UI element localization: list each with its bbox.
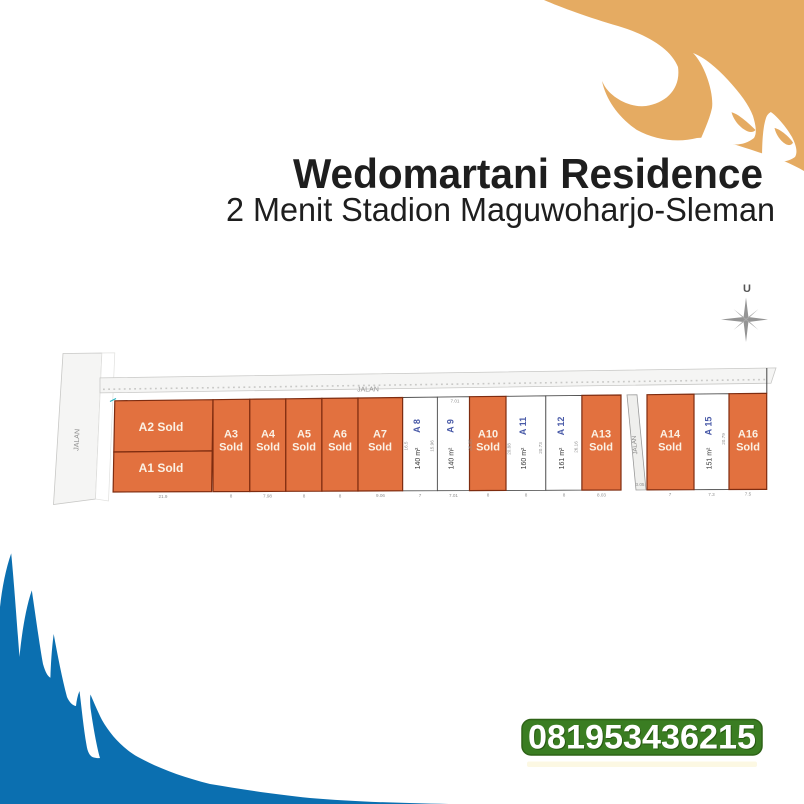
svg-text:8: 8 xyxy=(525,493,528,498)
svg-text:3.05: 3.05 xyxy=(636,482,645,487)
svg-text:Sold: Sold xyxy=(368,442,392,454)
svg-text:161 m²: 161 m² xyxy=(559,447,566,469)
svg-text:Wedomartani Residence: Wedomartani Residence xyxy=(293,150,763,197)
svg-text:JALAN: JALAN xyxy=(357,386,379,393)
svg-text:Sold: Sold xyxy=(219,442,243,454)
svg-text:7.5: 7.5 xyxy=(745,492,752,497)
svg-text:A6: A6 xyxy=(333,429,347,441)
svg-text:26.16: 26.16 xyxy=(574,441,579,453)
svg-text:U: U xyxy=(743,283,751,295)
svg-text:21.9: 21.9 xyxy=(159,494,168,499)
svg-text:Sold: Sold xyxy=(476,442,500,454)
svg-text:Sold: Sold xyxy=(292,442,316,454)
svg-text:8: 8 xyxy=(487,493,490,498)
svg-text:8: 8 xyxy=(230,494,233,499)
svg-text:A5: A5 xyxy=(297,429,311,441)
svg-text:A 9: A 9 xyxy=(445,419,455,433)
svg-text:7: 7 xyxy=(419,493,422,498)
svg-text:7.3: 7.3 xyxy=(708,492,715,497)
svg-text:7.01: 7.01 xyxy=(449,493,458,498)
svg-text:A3: A3 xyxy=(224,429,238,441)
svg-text:26.05: 26.05 xyxy=(468,439,473,451)
svg-text:7: 7 xyxy=(669,492,672,497)
svg-text:15.96: 15.96 xyxy=(430,440,435,452)
svg-text:2 Menit Stadion Maguwoharjo-Sl: 2 Menit Stadion Maguwoharjo-Sleman xyxy=(226,191,775,228)
svg-text:8.03: 8.03 xyxy=(597,492,606,497)
svg-text:A4: A4 xyxy=(261,429,276,441)
svg-text:20.79: 20.79 xyxy=(721,433,726,445)
svg-text:151 m²: 151 m² xyxy=(707,447,714,469)
svg-text:Sold: Sold xyxy=(736,442,760,454)
svg-text:A7: A7 xyxy=(373,429,387,441)
svg-text:A 15: A 15 xyxy=(704,417,714,436)
svg-text:A2 Sold: A2 Sold xyxy=(139,420,184,434)
svg-text:140 m²: 140 m² xyxy=(448,447,455,469)
svg-text:A10: A10 xyxy=(478,429,498,441)
svg-text:160 m²: 160 m² xyxy=(521,447,528,469)
svg-text:9.06: 9.06 xyxy=(376,493,385,498)
svg-text:A 12: A 12 xyxy=(556,417,566,436)
svg-text:7.01: 7.01 xyxy=(451,399,460,404)
svg-text:8: 8 xyxy=(303,493,306,498)
svg-text:081953436215: 081953436215 xyxy=(528,719,756,757)
svg-text:8: 8 xyxy=(563,492,566,497)
svg-text:Sold: Sold xyxy=(658,442,682,454)
svg-text:20.88: 20.88 xyxy=(507,443,512,455)
svg-text:A13: A13 xyxy=(591,429,611,441)
svg-text:JALAN: JALAN xyxy=(73,429,81,451)
svg-text:8: 8 xyxy=(339,493,342,498)
svg-text:7.98: 7.98 xyxy=(263,494,272,499)
svg-text:Sold: Sold xyxy=(328,442,352,454)
svg-text:A1 Sold: A1 Sold xyxy=(139,461,184,475)
svg-text:A 11: A 11 xyxy=(518,417,528,435)
svg-text:20.73: 20.73 xyxy=(538,442,543,454)
svg-text:A16: A16 xyxy=(738,429,758,441)
svg-text:A 8: A 8 xyxy=(412,419,422,433)
svg-text:Sold: Sold xyxy=(589,442,613,454)
svg-text:16.5: 16.5 xyxy=(404,441,409,450)
svg-text:Sold: Sold xyxy=(256,442,280,454)
svg-text:A14: A14 xyxy=(660,429,681,441)
svg-text:140 m²: 140 m² xyxy=(415,447,422,469)
